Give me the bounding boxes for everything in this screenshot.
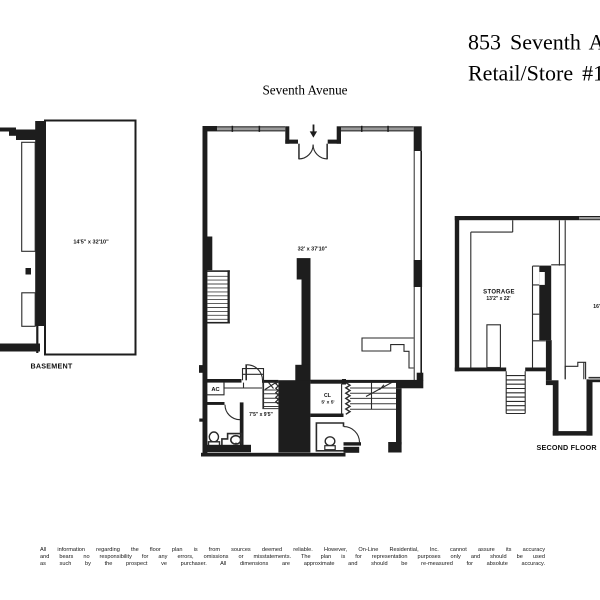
- svg-text:5' x 5': 5' x 5': [321, 400, 334, 406]
- svg-text:STORAGE: STORAGE: [483, 290, 515, 296]
- svg-text:14'5" x 32'10": 14'5" x 32'10": [73, 240, 109, 246]
- svg-text:AC: AC: [211, 387, 220, 393]
- svg-text:32' x 37'10": 32' x 37'10": [298, 247, 328, 253]
- svg-text:13'2" x 22': 13'2" x 22': [486, 296, 510, 302]
- svg-text:BASEMENT: BASEMENT: [31, 362, 73, 371]
- svg-text:853 Seventh Avenue: 853 Seventh Avenue: [468, 30, 600, 55]
- svg-text:7'5" x 9'5": 7'5" x 9'5": [249, 412, 273, 418]
- svg-text:SECOND FLOOR: SECOND FLOOR: [537, 443, 598, 452]
- svg-text:CL: CL: [324, 393, 332, 399]
- svg-text:16' x 22': 16' x 22': [593, 304, 600, 310]
- svg-text:Seventh Avenue: Seventh Avenue: [262, 83, 347, 98]
- svg-text:Retail/Store #1R: Retail/Store #1R: [468, 60, 600, 85]
